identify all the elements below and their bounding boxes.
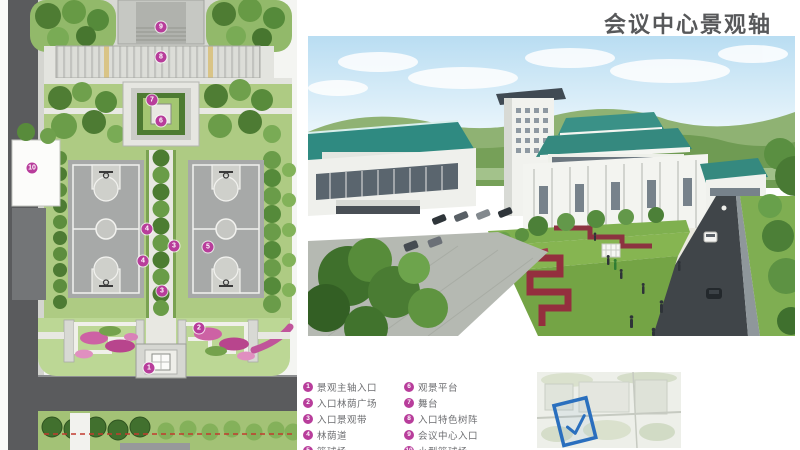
- plan-marker: 6: [156, 116, 167, 127]
- legend-item: 3入口景观带: [303, 411, 404, 427]
- legend: 1景观主轴入口2入口林荫广场3入口景观带4林荫道5篮球场 6观景平台7舞台8入口…: [303, 379, 528, 450]
- legend-item: 6观景平台: [404, 379, 478, 395]
- legend-item-label: 会议中心入口: [418, 428, 478, 442]
- legend-item-label: 景观主轴入口: [317, 380, 377, 394]
- legend-item-label: 入口林荫广场: [317, 396, 377, 410]
- location-key-map: [537, 372, 681, 448]
- legend-item: 7舞台: [404, 395, 478, 411]
- legend-column-1: 1景观主轴入口2入口林荫广场3入口景观带4林荫道5篮球场: [303, 379, 404, 450]
- plan-marker: 7: [147, 95, 158, 106]
- legend-item-number: 4: [303, 430, 313, 440]
- plan-marker: 1: [144, 363, 155, 374]
- legend-item-number: 2: [303, 398, 313, 408]
- perspective-rendering-image: [308, 36, 795, 336]
- legend-item: 8入口特色树阵: [404, 411, 478, 427]
- plan-marker: 2: [194, 323, 205, 334]
- legend-item-label: 林荫道: [317, 428, 347, 442]
- plan-marker: 4: [138, 256, 149, 267]
- plan-marker: 5: [203, 242, 214, 253]
- legend-item-number: 3: [303, 414, 313, 424]
- plan-marker: 3: [157, 286, 168, 297]
- foreground-plaza: [308, 207, 548, 336]
- legend-item: 2入口林荫广场: [303, 395, 404, 411]
- legend-item-label: 入口景观带: [317, 412, 367, 426]
- key-map-image: [537, 372, 681, 448]
- plan-marker: 9: [156, 22, 167, 33]
- legend-item-number: 5: [303, 446, 313, 450]
- legend-item-label: 篮球场: [317, 444, 347, 450]
- design-board: 9876104354321 会议中心景观轴: [0, 0, 800, 450]
- legend-item-label: 观景平台: [418, 380, 458, 394]
- legend-item-number: 10: [404, 446, 414, 450]
- page-title: 会议中心景观轴: [604, 7, 772, 39]
- legend-item-label: 小型篮球场: [418, 444, 468, 450]
- legend-item-number: 9: [404, 430, 414, 440]
- plan-marker: 8: [156, 52, 167, 63]
- legend-item: 4林荫道: [303, 427, 404, 443]
- legend-item: 10小型篮球场: [404, 443, 478, 450]
- legend-item-number: 1: [303, 382, 313, 392]
- legend-item: 1景观主轴入口: [303, 379, 404, 395]
- plan-marker: 4: [142, 224, 153, 235]
- site-plan-panel: 9876104354321: [0, 0, 297, 450]
- legend-item-label: 舞台: [418, 396, 438, 410]
- plan-marker: 3: [169, 241, 180, 252]
- plan-marker: 10: [27, 163, 38, 174]
- legend-item-label: 入口特色树阵: [418, 412, 478, 426]
- legend-item-number: 7: [404, 398, 414, 408]
- legend-item-number: 6: [404, 382, 414, 392]
- legend-item-number: 8: [404, 414, 414, 424]
- legend-column-2: 6观景平台7舞台8入口特色树阵9会议中心入口10小型篮球场: [404, 379, 478, 450]
- legend-item: 9会议中心入口: [404, 427, 478, 443]
- rendering-panel: [308, 36, 795, 336]
- legend-item: 5篮球场: [303, 443, 404, 450]
- exhibition-hall: [308, 120, 476, 216]
